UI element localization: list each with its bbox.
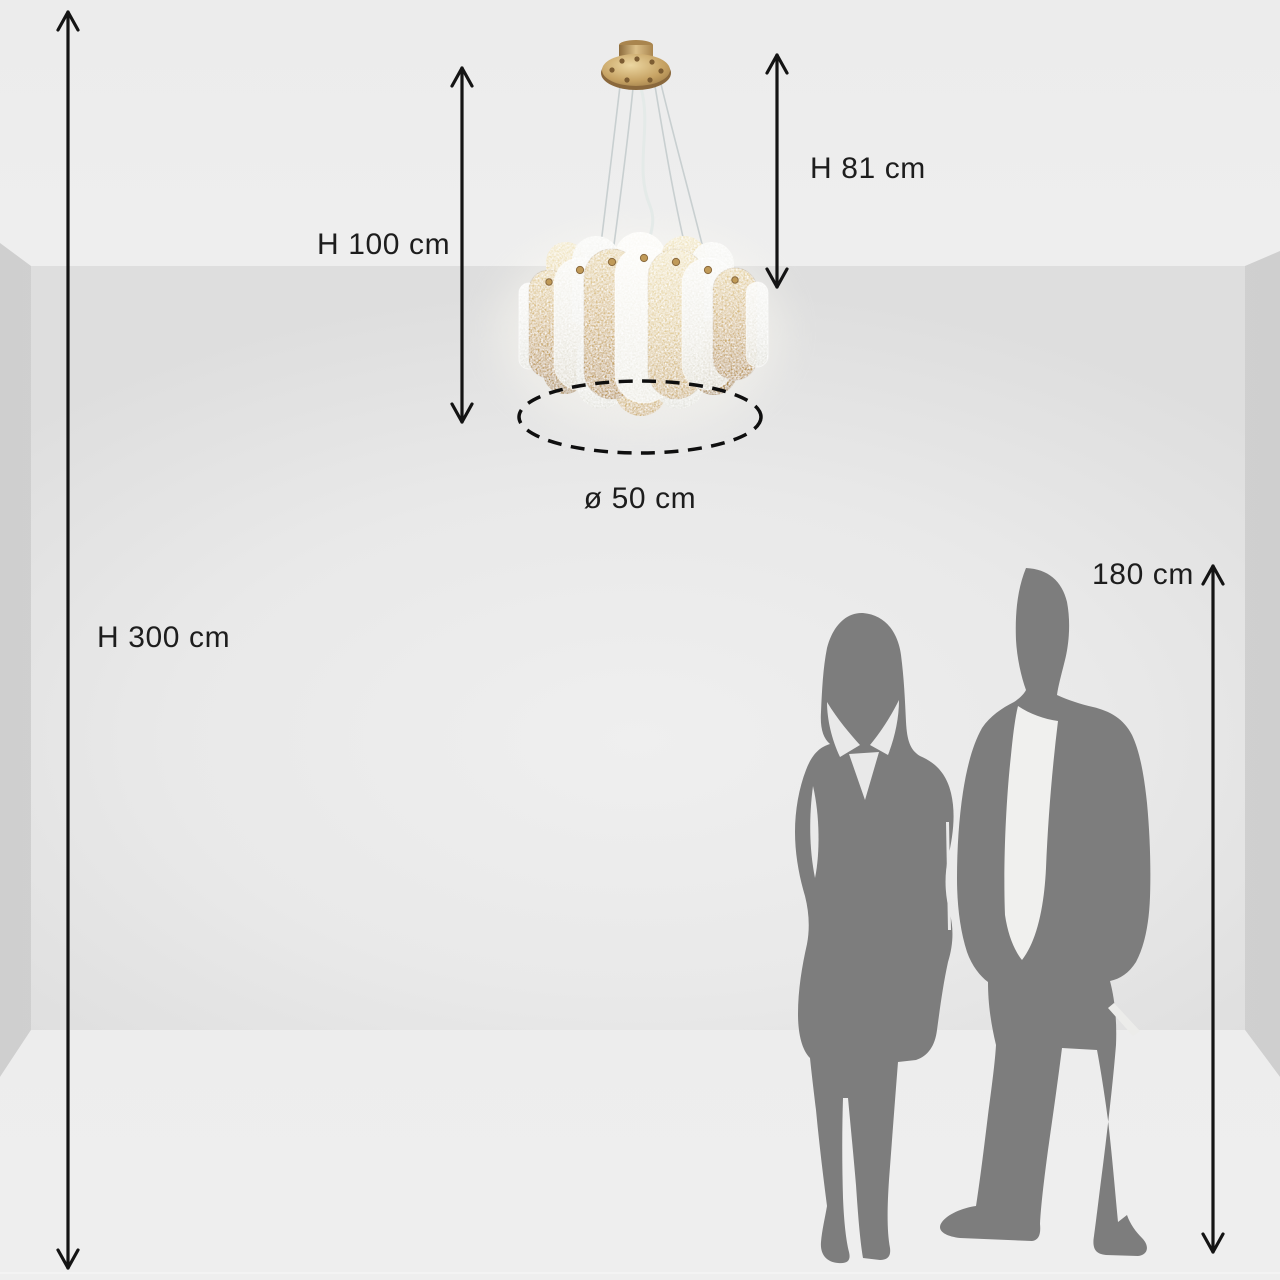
person-height-arrow <box>1203 566 1223 1252</box>
room-height-arrow <box>58 12 78 1268</box>
ceiling-canopy <box>601 40 671 90</box>
person-height-label: 180 cm <box>1092 558 1194 592</box>
product-dimension-diagram: H 300 cm H 100 cm H 81 cm ø 50 cm 180 cm <box>0 0 1280 1280</box>
suspension-height-arrow <box>452 68 472 422</box>
woman-silhouette <box>795 613 954 1263</box>
chandelier <box>495 40 785 430</box>
fixture-height-arrow <box>767 55 787 287</box>
suspension-wires <box>600 84 703 256</box>
room-height-label: H 300 cm <box>97 621 230 655</box>
diameter-label: ø 50 cm <box>584 482 697 516</box>
suspension-height-label: H 100 cm <box>317 228 450 262</box>
fixture-height-label: H 81 cm <box>810 152 926 186</box>
